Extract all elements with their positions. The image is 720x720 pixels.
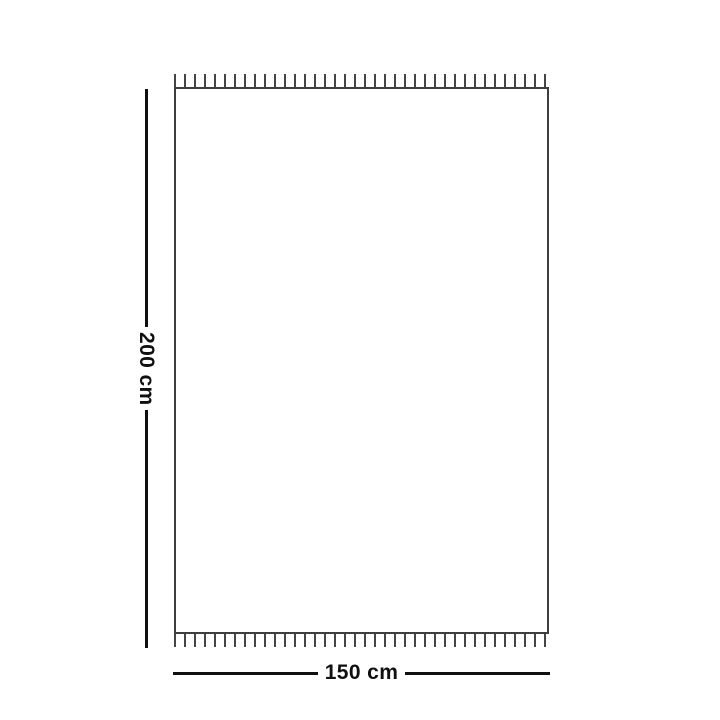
height-dimension-line-lower — [145, 410, 148, 648]
width-dimension-label: 150 cm — [325, 661, 399, 685]
blanket-outline — [174, 87, 549, 634]
fringe-top — [174, 74, 549, 87]
height-dimension-line-upper — [145, 89, 148, 327]
height-dimension-label: 200 cm — [134, 332, 158, 406]
height-dimension: 200 cm — [131, 89, 161, 648]
width-dimension-line-left — [173, 672, 318, 675]
fringe-bottom — [174, 634, 549, 647]
width-dimension: 150 cm — [173, 659, 550, 687]
dimension-diagram: 200 cm 150 cm — [0, 0, 720, 720]
width-dimension-line-right — [405, 672, 550, 675]
